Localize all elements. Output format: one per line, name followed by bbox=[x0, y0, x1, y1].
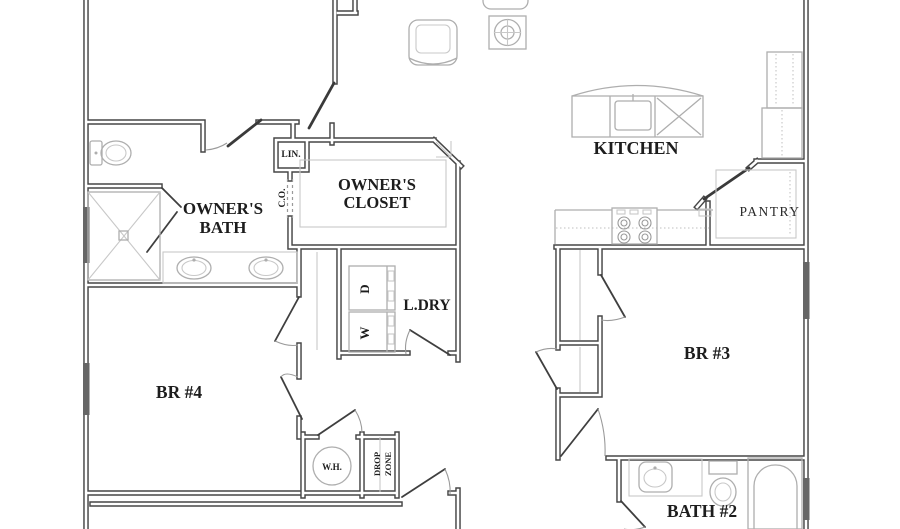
hall-closet-door bbox=[536, 352, 557, 389]
walls bbox=[86, 0, 806, 529]
toilet-flush-dot bbox=[95, 152, 98, 155]
range-control-2 bbox=[630, 210, 638, 214]
br4-closet-door bbox=[275, 297, 299, 341]
rear-hall-door bbox=[402, 469, 445, 497]
window-bath2 bbox=[803, 478, 810, 520]
label-washer: W bbox=[357, 327, 372, 340]
armchair-cushion bbox=[416, 25, 450, 53]
laundry-door bbox=[410, 330, 450, 355]
br4-closet-door-arc bbox=[275, 341, 298, 346]
kitchen-island bbox=[572, 96, 703, 137]
room-label-owners-closet-2: CLOSET bbox=[344, 193, 411, 212]
dryer-tick-1 bbox=[388, 271, 394, 281]
water-closet-door bbox=[162, 188, 181, 207]
bath2-toilet-tank bbox=[709, 461, 737, 474]
label-drop-zone-2: ZONE bbox=[383, 452, 393, 476]
closet-shelving bbox=[300, 160, 580, 492]
bath2-entry-door bbox=[621, 501, 645, 527]
sofa-edge-icon bbox=[483, 0, 528, 9]
owners-suite-door-arc bbox=[206, 143, 227, 150]
faucet-dot-left bbox=[192, 258, 195, 261]
bath2-faucet-dot bbox=[653, 466, 656, 469]
bathtub-icon bbox=[748, 458, 802, 529]
room-label-br3: BR #3 bbox=[684, 343, 730, 363]
room-label-br4: BR #4 bbox=[156, 382, 202, 402]
hall-closet-door-arc bbox=[536, 348, 557, 352]
pantry-door bbox=[704, 168, 749, 199]
label-dryer: D bbox=[357, 284, 372, 293]
water-heater-door-arc bbox=[355, 410, 362, 433]
window-br3 bbox=[803, 262, 810, 319]
range-control-3 bbox=[643, 210, 651, 214]
dryer-tick-2 bbox=[388, 291, 394, 301]
label-linen: LIN. bbox=[281, 150, 300, 160]
refrigerator-doors bbox=[776, 54, 793, 106]
washer-tick-2 bbox=[388, 334, 394, 344]
br4-entry-door-arc bbox=[281, 374, 298, 377]
br3-closet-door-arc bbox=[601, 317, 625, 321]
label-drop-zone-1: DROP bbox=[372, 452, 382, 476]
bathtub-basin bbox=[754, 465, 797, 529]
great-room-door bbox=[309, 83, 334, 128]
br3-closet-door bbox=[601, 275, 625, 317]
owners-suite-door bbox=[228, 120, 261, 146]
room-label-owners-bath-1: OWNER'S bbox=[183, 199, 263, 218]
floor-plan: OWNER'S BATH OWNER'S CLOSET KITCHEN PANT… bbox=[0, 0, 900, 529]
room-label-bath2: BATH #2 bbox=[667, 501, 737, 521]
island-bar-arc bbox=[572, 86, 703, 97]
shower-door bbox=[147, 212, 177, 252]
vanity-sink-left-inner bbox=[182, 261, 206, 276]
room-label-owners-closet-1: OWNER'S bbox=[338, 175, 416, 194]
label-cased-opening: C.O. bbox=[278, 189, 288, 208]
label-water-heater: W.H. bbox=[322, 462, 342, 472]
range-control-1 bbox=[617, 210, 625, 214]
cased-opening-dashes bbox=[288, 179, 293, 218]
bath2-sink-inner bbox=[644, 469, 666, 487]
vanity-sink-right-inner bbox=[254, 261, 278, 276]
br3-entry-door bbox=[561, 409, 598, 456]
room-label-owners-bath-2: BATH bbox=[200, 218, 247, 237]
island-sink-icon bbox=[615, 101, 651, 130]
shower-glass-x bbox=[88, 192, 160, 280]
range-burners bbox=[618, 217, 651, 243]
br4-entry-door bbox=[281, 377, 302, 419]
br3-entry-door-arc bbox=[598, 409, 605, 456]
room-label-pantry: PANTRY bbox=[739, 204, 800, 219]
room-label-laundry: L.DRY bbox=[403, 297, 450, 314]
floor-plan-drawing: OWNER'S BATH OWNER'S CLOSET KITCHEN PANT… bbox=[0, 0, 900, 529]
toilet-bowl-inner bbox=[106, 145, 126, 161]
room-label-kitchen: KITCHEN bbox=[593, 138, 678, 158]
dishwasher-x bbox=[657, 98, 701, 135]
counter-edge bbox=[555, 210, 713, 244]
washer-tick-1 bbox=[388, 316, 394, 326]
armchair-front bbox=[409, 58, 457, 64]
great-room-furniture bbox=[409, 0, 528, 65]
vanity-counter bbox=[163, 252, 297, 283]
window-br4 bbox=[83, 363, 90, 415]
bath2-toilet-inner bbox=[715, 483, 731, 501]
faucet-dot-right bbox=[264, 258, 267, 261]
island-dividers bbox=[610, 96, 655, 137]
water-heater-door bbox=[318, 410, 355, 435]
refrigerator-icon bbox=[767, 52, 802, 108]
